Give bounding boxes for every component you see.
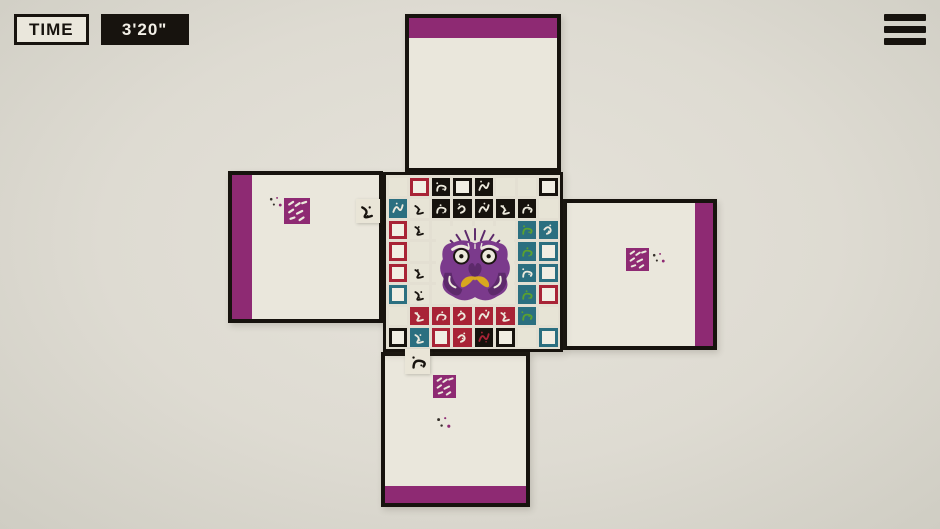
grid-tile[interactable] [387, 327, 409, 349]
purple-stamp-icon [626, 248, 649, 271]
grid-tile-face [518, 178, 537, 197]
grid-tile[interactable] [452, 198, 474, 220]
time-value-box: 3'20" [101, 14, 189, 45]
grid-tile[interactable] [538, 284, 560, 306]
grid-tile[interactable] [516, 284, 538, 306]
loose-tile[interactable] [405, 349, 430, 374]
scatter-dots-icon [651, 252, 667, 265]
grid-tile[interactable] [430, 305, 452, 327]
grid-tile-face [453, 178, 472, 197]
grid-tile-face [539, 242, 558, 261]
grid-tile-face [453, 199, 472, 218]
grid-tile[interactable] [452, 176, 474, 198]
grid-tile-face [389, 199, 408, 218]
grid-tile-face [518, 242, 537, 261]
hamburger-icon [884, 14, 926, 21]
time-value: 3'20" [122, 20, 167, 40]
grid-tile-face [432, 328, 451, 347]
grid-tile[interactable] [538, 241, 560, 263]
grid-tile[interactable] [516, 219, 538, 241]
grid-tile[interactable] [495, 198, 517, 220]
grid-tile[interactable] [538, 176, 560, 198]
grid-tile[interactable] [387, 241, 409, 263]
purple-stamp-icon [433, 375, 456, 398]
grid-tile[interactable] [387, 198, 409, 220]
grid-tile[interactable] [387, 305, 409, 327]
grid-tile-face [518, 264, 537, 283]
puzzle-grid[interactable] [383, 172, 563, 352]
grid-tile-face [496, 307, 515, 326]
grid-tile[interactable] [387, 219, 409, 241]
grid-tile-face [539, 178, 558, 197]
grid-tile-face [539, 307, 558, 326]
grid-tile[interactable] [387, 176, 409, 198]
grid-tile[interactable] [473, 305, 495, 327]
grid-tile-face [432, 307, 451, 326]
fold-arm-left[interactable] [228, 171, 383, 323]
grid-tile[interactable] [387, 284, 409, 306]
grid-tile[interactable] [538, 305, 560, 327]
scatter-dots-icon [435, 416, 453, 430]
grid-tile-face [539, 285, 558, 304]
grid-tile-face [475, 199, 494, 218]
grid-tile[interactable] [409, 219, 431, 241]
grid-tile-face [389, 285, 408, 304]
grid-tile[interactable] [452, 305, 474, 327]
grid-tile[interactable] [430, 198, 452, 220]
grid-tile[interactable] [430, 327, 452, 349]
grid-tile-face [518, 307, 537, 326]
grid-tile[interactable] [473, 176, 495, 198]
grid-tile-face [410, 307, 429, 326]
grid-tile[interactable] [409, 305, 431, 327]
grid-tile-face [410, 242, 429, 261]
grid-tile-face [410, 221, 429, 240]
grid-tile-face [475, 178, 494, 197]
grid-tile-face [410, 285, 429, 304]
grid-tile-face [496, 178, 515, 197]
grid-tile-face [432, 178, 451, 197]
menu-button[interactable] [884, 14, 926, 45]
grid-tile-face [475, 307, 494, 326]
grid-tile[interactable] [409, 262, 431, 284]
grid-tile[interactable] [516, 198, 538, 220]
grid-tile-face [410, 328, 429, 347]
grid-tile[interactable] [516, 176, 538, 198]
grid-tile-face [539, 199, 558, 218]
grid-tile-face [539, 221, 558, 240]
grid-tile-face [496, 199, 515, 218]
grid-tile[interactable] [452, 327, 474, 349]
grid-tile[interactable] [409, 327, 431, 349]
grid-tile-face [410, 199, 429, 218]
grid-tile[interactable] [495, 305, 517, 327]
grid-tile-face [496, 328, 515, 347]
grid-tile-face [389, 307, 408, 326]
grid-tile[interactable] [387, 262, 409, 284]
grid-tile[interactable] [516, 241, 538, 263]
grid-tile-face [389, 242, 408, 261]
grid-tile-face [389, 328, 408, 347]
grid-tile-face [475, 328, 494, 347]
grid-tile[interactable] [409, 284, 431, 306]
grid-tile-face [453, 307, 472, 326]
creature-face [436, 226, 514, 304]
game-stage: TIME 3'20" [0, 0, 940, 529]
grid-tile-face [539, 328, 558, 347]
scatter-dots-icon [268, 196, 284, 209]
grid-tile[interactable] [409, 241, 431, 263]
grid-tile-face [389, 178, 408, 197]
grid-tile-face [518, 221, 537, 240]
grid-tile[interactable] [516, 327, 538, 349]
grid-tile[interactable] [409, 176, 431, 198]
grid-tile[interactable] [409, 198, 431, 220]
grid-tile-face [453, 328, 472, 347]
grid-tile[interactable] [538, 262, 560, 284]
grid-tile-face [518, 285, 537, 304]
grid-tile-face [410, 178, 429, 197]
grid-tile-face [518, 328, 537, 347]
fold-arm-top[interactable] [405, 14, 561, 172]
grid-tile[interactable] [430, 176, 452, 198]
grid-tile-face [432, 199, 451, 218]
grid-tile[interactable] [538, 327, 560, 349]
loose-tile[interactable] [356, 199, 380, 223]
grid-tile[interactable] [516, 262, 538, 284]
fold-arm-top-bar [409, 18, 557, 38]
purple-stamp-icon [284, 198, 310, 224]
fold-arm-right[interactable] [563, 199, 717, 350]
fold-arm-left-bar [232, 175, 252, 319]
fold-arm-right-bar [695, 203, 713, 346]
grid-tile[interactable] [516, 305, 538, 327]
grid-tile-face [518, 199, 537, 218]
grid-tile[interactable] [538, 198, 560, 220]
grid-tile[interactable] [473, 198, 495, 220]
grid-tile-face [389, 264, 408, 283]
time-label-box: TIME [14, 14, 89, 45]
time-label: TIME [29, 20, 74, 40]
grid-tile-face [389, 221, 408, 240]
grid-tile-face [410, 264, 429, 283]
grid-tile[interactable] [538, 219, 560, 241]
grid-tile-face [539, 264, 558, 283]
hud: TIME 3'20" [14, 14, 189, 45]
grid-tile[interactable] [495, 176, 517, 198]
grid-tile[interactable] [495, 327, 517, 349]
fold-arm-bottom-bar [385, 486, 526, 503]
grid-tile[interactable] [473, 327, 495, 349]
